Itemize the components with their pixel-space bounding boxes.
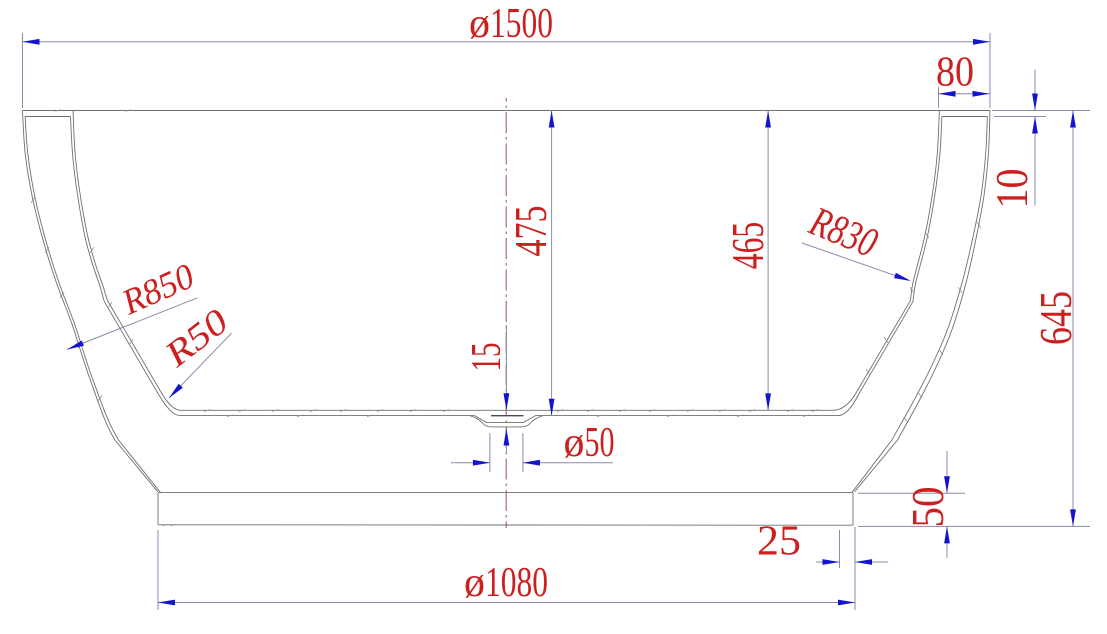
svg-text:10: 10 <box>987 169 1037 209</box>
svg-text:ø50: ø50 <box>564 420 615 466</box>
svg-text:15: 15 <box>464 343 510 372</box>
svg-text:25: 25 <box>757 519 801 565</box>
svg-text:475: 475 <box>506 206 556 257</box>
svg-text:80: 80 <box>936 50 974 96</box>
svg-text:50: 50 <box>903 487 953 528</box>
svg-text:645: 645 <box>1031 291 1081 345</box>
svg-text:465: 465 <box>723 222 773 270</box>
svg-text:ø1080: ø1080 <box>464 560 548 606</box>
svg-text:ø1500: ø1500 <box>469 1 553 47</box>
